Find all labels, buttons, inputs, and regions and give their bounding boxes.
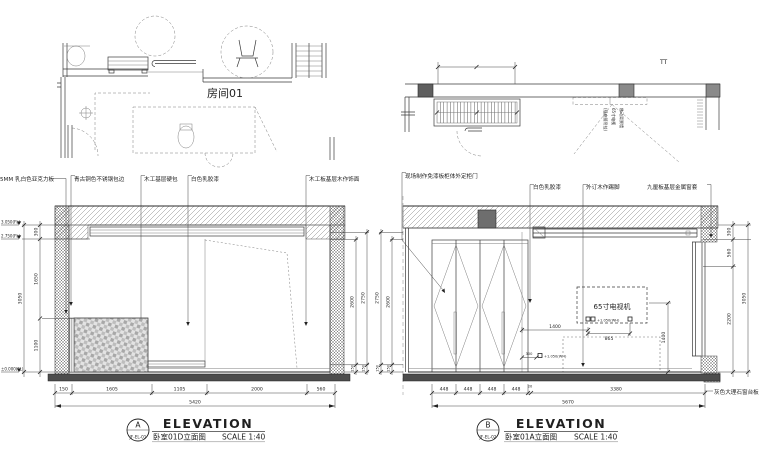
dim-total-label: 5420 — [189, 400, 201, 406]
elev-b-inner-dims: 1400 865 300 +1.050(WH) 1400 — [520, 301, 671, 374]
tv-note-line3: (插座随吊挂) — [603, 108, 609, 132]
plan-tv-note: 移动背景墙 65寸电视 (插座随吊挂) — [603, 108, 625, 132]
floor-plan-room01: 房间01 — [57, 16, 334, 167]
dim-label: 150 — [351, 364, 355, 372]
plan-corner-mark: TT — [659, 59, 668, 66]
dim-label: 3380 — [610, 387, 622, 393]
dim-label: 1400 — [661, 332, 667, 344]
dim-label: 300 — [526, 352, 534, 356]
dim-label: 2200 — [727, 313, 733, 325]
material-label: 现场制作免漆板柜体外定柜门 — [405, 172, 478, 180]
dim-label: 2750 — [361, 292, 367, 304]
material-label: 白色乳胶漆 — [533, 183, 561, 191]
material-label: 木工基层硬包 — [144, 175, 178, 183]
dim-label: 1605 — [106, 387, 118, 393]
dim-label: 1650 — [34, 273, 40, 285]
material-label: 外订木作踢脚 — [586, 183, 620, 191]
elev-b-right-dims: 300 560 2200 3050 — [703, 221, 751, 377]
dim-total-label: 3050 — [742, 293, 748, 305]
elev-a-bottom-dims: 150 1605 1105 2000 560 5420 — [53, 384, 337, 408]
view-subtitle: 卧室01A立面图 — [505, 432, 557, 442]
dim-label: 300 — [34, 228, 40, 237]
elev-b-left-dims: 2750 2600 150 150 — [375, 229, 404, 375]
tv-note-line1: 移动背景墙 — [619, 108, 625, 128]
level-label: 2.750(FL) — [1, 234, 21, 239]
tv-outline: 65寸电视机 +1.050(WH) — [577, 287, 647, 323]
view-scale: SCALE 1:40 — [574, 433, 617, 442]
wardrobe-doors — [432, 240, 528, 372]
dim-label: 150 — [59, 387, 68, 393]
dim-label: 150 — [362, 364, 366, 372]
tv-note-line2: 65寸电视 — [611, 108, 617, 125]
dim-label: 2750 — [375, 292, 381, 304]
material-label: 青古铜色不锈钢包边 — [74, 175, 125, 183]
elevation-b: 65寸电视机 +1.050(WH) 1400 865 300 +1.050(WH… — [375, 196, 760, 442]
dim-label: 448 — [488, 387, 497, 393]
view-scale: SCALE 1:40 — [222, 433, 265, 442]
headboard-panel — [74, 318, 148, 372]
dim-label: 150 — [387, 364, 391, 372]
elevation-a: 3.050(FL) 2.750(FL) ±0.000(FL) 300 1650 … — [1, 206, 369, 442]
elev-b-bottom-dims: 448 448 448 448 20 3380 5670 — [430, 384, 707, 408]
dim-label: 448 — [512, 387, 521, 393]
dim-label: 2000 — [251, 387, 263, 393]
cad-sheet: 房间01 移动背景 — [0, 0, 760, 451]
view-tag: A — [135, 421, 141, 430]
dim-label: 448 — [440, 387, 449, 393]
cad-drawing: 房间01 移动背景 — [0, 0, 760, 451]
window-jamb — [692, 242, 720, 382]
dim-label: 2600 — [350, 296, 356, 308]
room-label: 房间01 — [207, 87, 243, 100]
socket-note: +1.050(WH) — [544, 355, 567, 359]
dim-label: 1100 — [34, 340, 40, 352]
view-tag: B — [485, 421, 490, 430]
floor-plan-wall-strip: 移动背景墙 65寸电视 (插座随吊挂) TT — [401, 59, 720, 162]
view-title: ELEVATION — [163, 416, 253, 431]
plan-chair-symbol — [236, 40, 258, 67]
dim-label: 150 — [376, 364, 380, 372]
dim-label: 1400 — [549, 324, 561, 330]
dim-label: 20 — [528, 385, 533, 389]
dim-label: 560 — [727, 249, 733, 258]
view-code: JF-EL-02 — [479, 435, 497, 440]
dim-label: 300 — [727, 228, 733, 237]
dim-label: 1105 — [174, 387, 186, 393]
dim-total-label: 3050 — [18, 293, 24, 305]
level-label: 3.050(FL) — [1, 220, 21, 225]
dim-total-label: 5670 — [562, 400, 574, 406]
material-label: 5MM 乳白色亚克力板 — [0, 175, 55, 183]
dim-label: 2600 — [386, 296, 392, 308]
level-label: ±0.000(FL) — [1, 367, 24, 372]
material-label: 灰色大理石窗台板 — [714, 388, 759, 396]
dim-label: 448 — [464, 387, 473, 393]
material-label: 九厘板基层金属窗套 — [647, 183, 698, 191]
elev-a-title: A JF-EL-01 ELEVATION 卧室01D立面图 SCALE 1:40 — [127, 416, 265, 442]
socket-note: +1.050(WH) — [597, 319, 620, 323]
view-title: ELEVATION — [516, 416, 606, 431]
elev-b-title: B JF-EL-02 ELEVATION 卧室01A立面图 SCALE 1:40 — [477, 416, 618, 442]
view-code: JF-EL-01 — [129, 435, 147, 440]
dim-label: 560 — [317, 387, 326, 393]
material-labels-left: 5MM 乳白色亚克力板 青古铜色不锈钢包边 木工基层硬包 白色乳胶漆 木工板基层… — [0, 175, 360, 326]
tv-label: 65寸电视机 — [594, 302, 631, 311]
material-label: 木工板基层木作饰面 — [309, 175, 360, 183]
view-subtitle: 卧室01D立面图 — [153, 432, 206, 442]
material-label: 白色乳胶漆 — [191, 175, 219, 183]
